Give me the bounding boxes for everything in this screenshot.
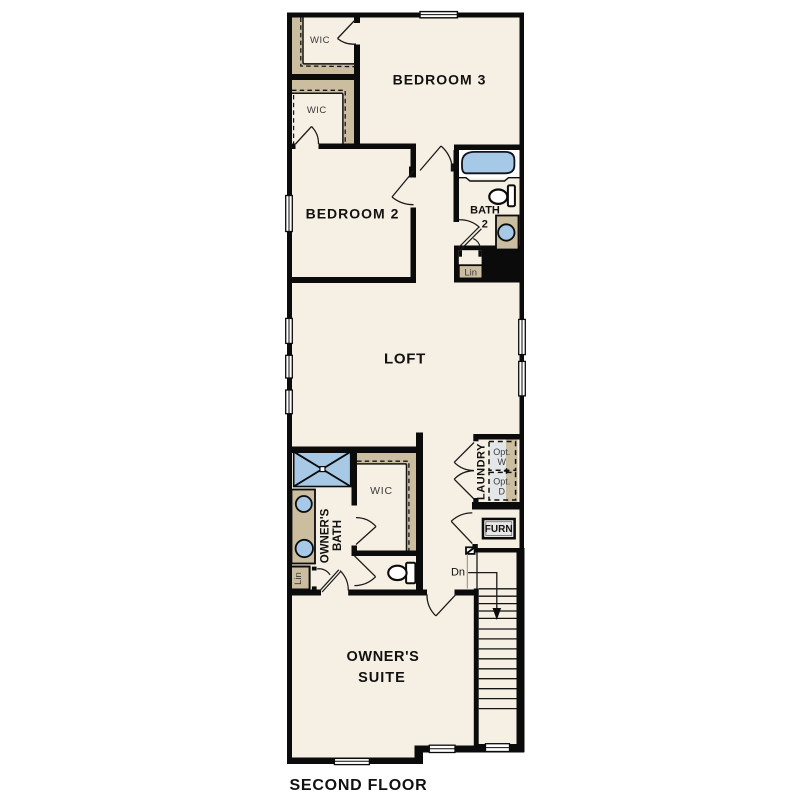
svg-text:WIC: WIC — [310, 35, 330, 46]
svg-text:BEDROOM 3: BEDROOM 3 — [393, 72, 487, 88]
svg-text:SUITE: SUITE — [358, 670, 406, 686]
svg-text:D: D — [499, 487, 506, 497]
svg-text:WIC: WIC — [307, 105, 327, 116]
svg-text:LOFT: LOFT — [384, 351, 426, 368]
svg-text:OWNER'S: OWNER'S — [347, 649, 420, 665]
svg-text:SECOND FLOOR: SECOND FLOOR — [290, 777, 428, 794]
svg-text:BATH: BATH — [470, 205, 500, 217]
svg-text:BEDROOM 2: BEDROOM 2 — [306, 206, 400, 222]
svg-text:LAUNDRY: LAUNDRY — [476, 443, 488, 500]
svg-text:BATH: BATH — [332, 520, 344, 551]
svg-text:Lin: Lin — [293, 572, 304, 585]
svg-text:Opt.: Opt. — [493, 477, 510, 487]
svg-text:Opt.: Opt. — [493, 447, 510, 457]
svg-text:W: W — [498, 457, 507, 467]
svg-text:FURN: FURN — [485, 524, 513, 535]
svg-text:WIC: WIC — [370, 485, 393, 497]
svg-text:2: 2 — [482, 219, 488, 231]
svg-text:Lin: Lin — [464, 268, 477, 279]
svg-text:Dn: Dn — [451, 567, 465, 579]
svg-text:OWNER'S: OWNER'S — [320, 508, 332, 563]
